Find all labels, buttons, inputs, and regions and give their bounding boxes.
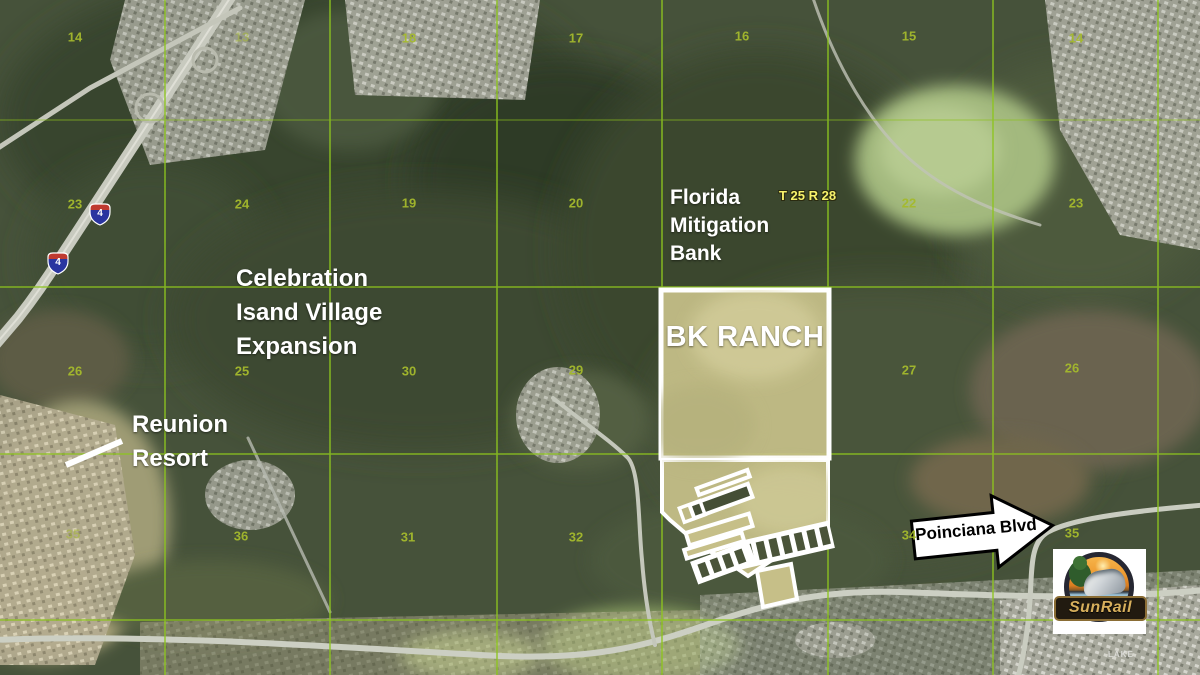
township-range-label: T 25 R 28	[779, 188, 836, 203]
interstate-4-number: 4	[88, 208, 112, 219]
lake-label: LAKE	[1108, 650, 1134, 659]
label-line: Florida	[670, 184, 769, 212]
sunrail-logo-text: SunRail	[1054, 596, 1147, 621]
interstate-4-number: 4	[46, 257, 70, 268]
label-line: Isand Village	[236, 296, 382, 330]
reunion-resort-label: Reunion Resort	[132, 408, 228, 476]
label-line: Reunion	[132, 408, 228, 442]
label-line: Expansion	[236, 330, 382, 364]
florida-mitigation-bank-label: Florida Mitigation Bank	[670, 184, 769, 268]
aerial-map: Florida Mitigation Bank T 25 R 28 BK RAN…	[0, 0, 1200, 675]
label-line: Bank	[670, 240, 769, 268]
bk-ranch-label: BK RANCH	[661, 321, 829, 354]
celebration-expansion-label: Celebration Isand Village Expansion	[236, 262, 382, 364]
satellite-background	[0, 0, 1200, 675]
label-line: Celebration	[236, 262, 382, 296]
tree-icon	[1073, 556, 1087, 570]
label-line: Mitigation	[670, 212, 769, 240]
label-line: Resort	[132, 442, 228, 476]
sunrail-logo: SunRail	[1053, 549, 1146, 634]
